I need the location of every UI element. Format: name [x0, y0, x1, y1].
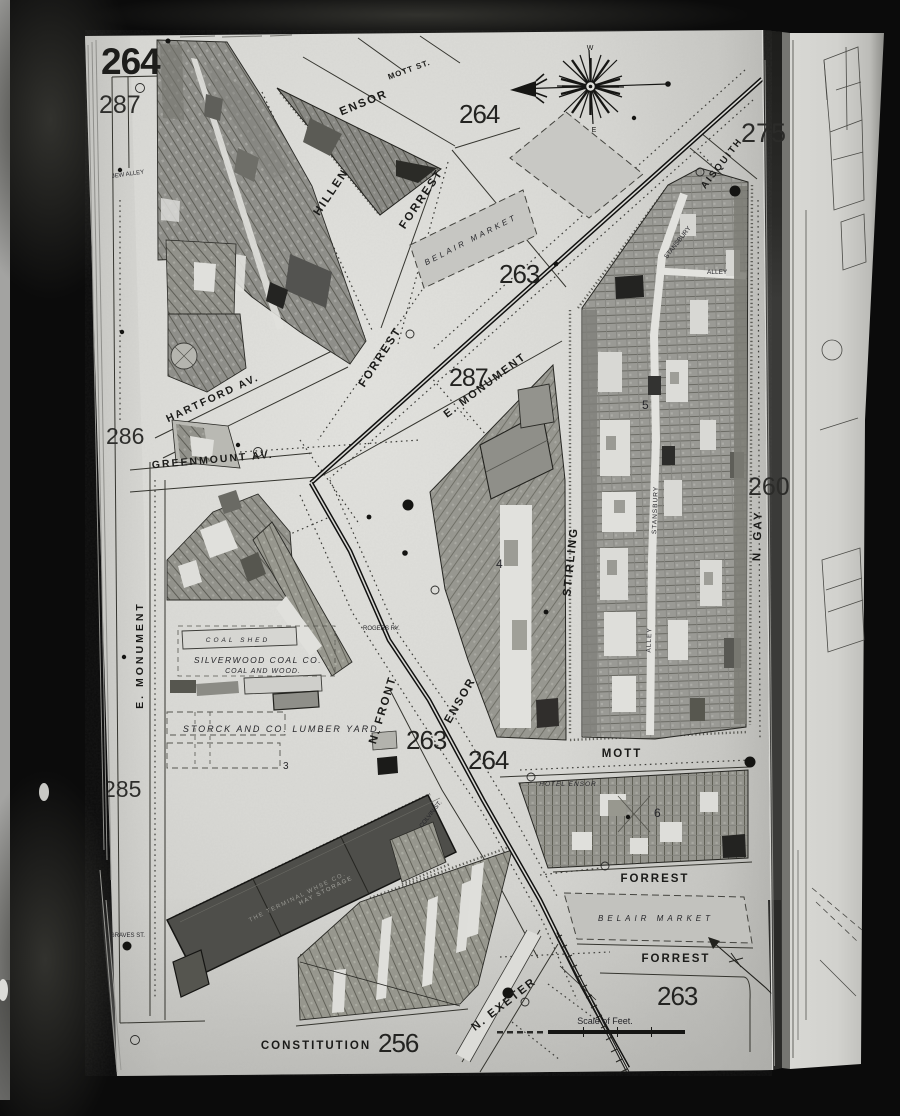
svg-text:285: 285	[103, 776, 141, 802]
svg-text:FORREST: FORREST	[621, 873, 690, 885]
svg-text:FORREST: FORREST	[642, 953, 711, 965]
svg-text:COAL AND WOOD.: COAL AND WOOD.	[225, 668, 301, 675]
svg-text:264: 264	[459, 99, 500, 129]
svg-text:264: 264	[101, 41, 161, 82]
svg-text:E: E	[592, 127, 597, 134]
svg-text:CONSTITUTION: CONSTITUTION	[261, 1040, 371, 1052]
svg-text:286: 286	[106, 423, 144, 449]
svg-text:287: 287	[99, 91, 141, 119]
svg-text:BELAIR MARKET: BELAIR MARKET	[598, 914, 714, 923]
svg-text:E. MONUMENT: E. MONUMENT	[134, 601, 146, 709]
svg-text:ROGERS RY.: ROGERS RY.	[363, 626, 400, 632]
svg-text:5: 5	[642, 398, 649, 412]
svg-text:HOTEL ENSOR: HOTEL ENSOR	[539, 781, 596, 788]
svg-text:ALLEY: ALLEY	[646, 627, 654, 652]
svg-text:STORCK AND CO. LUMBER YARD.: STORCK AND CO. LUMBER YARD.	[183, 724, 383, 734]
svg-text:275: 275	[741, 118, 786, 148]
svg-text:W: W	[587, 45, 594, 52]
svg-text:260: 260	[748, 473, 790, 501]
svg-text:6: 6	[654, 806, 661, 820]
svg-text:GRAVES ST.: GRAVES ST.	[110, 933, 145, 939]
svg-text:263: 263	[406, 725, 447, 755]
svg-text:263: 263	[657, 981, 698, 1011]
svg-text:MOTT: MOTT	[602, 748, 643, 760]
svg-text:264: 264	[468, 745, 509, 775]
svg-text:COAL SHED: COAL SHED	[206, 637, 270, 644]
svg-text:ALLEY: ALLEY	[707, 269, 728, 276]
svg-text:SILVERWOOD COAL CO.: SILVERWOOD COAL CO.	[194, 655, 322, 665]
svg-text:N. GAY: N. GAY	[751, 510, 765, 561]
svg-text:263: 263	[499, 259, 540, 289]
svg-text:256: 256	[378, 1028, 419, 1058]
svg-text:4: 4	[496, 557, 503, 571]
svg-text:3: 3	[283, 761, 289, 772]
svg-text:Scale of Feet.: Scale of Feet.	[577, 1016, 633, 1026]
